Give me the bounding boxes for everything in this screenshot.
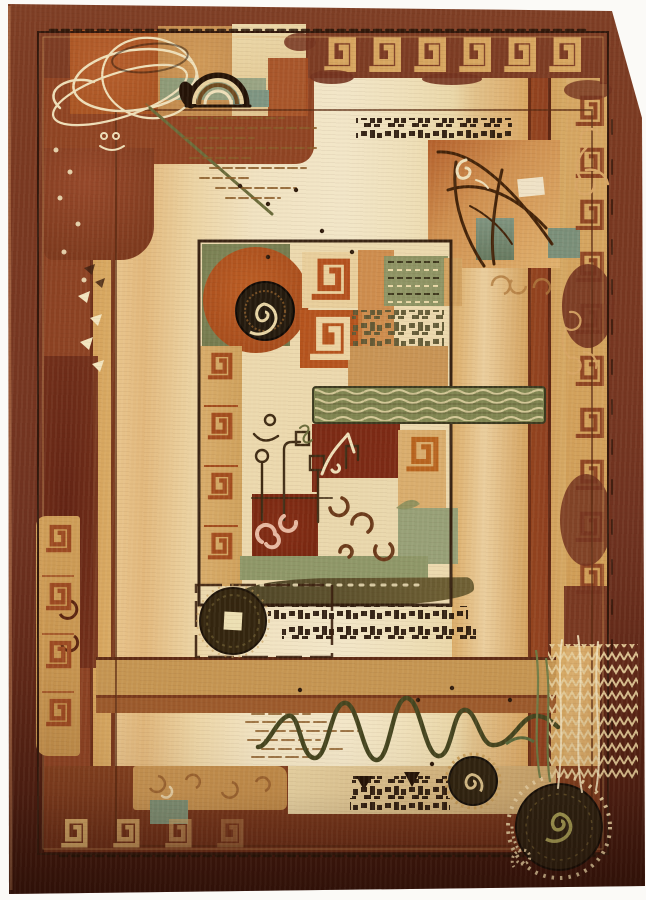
photo-vignette — [0, 0, 646, 900]
rug-product-photo — [0, 0, 646, 900]
rug — [0, 0, 646, 900]
